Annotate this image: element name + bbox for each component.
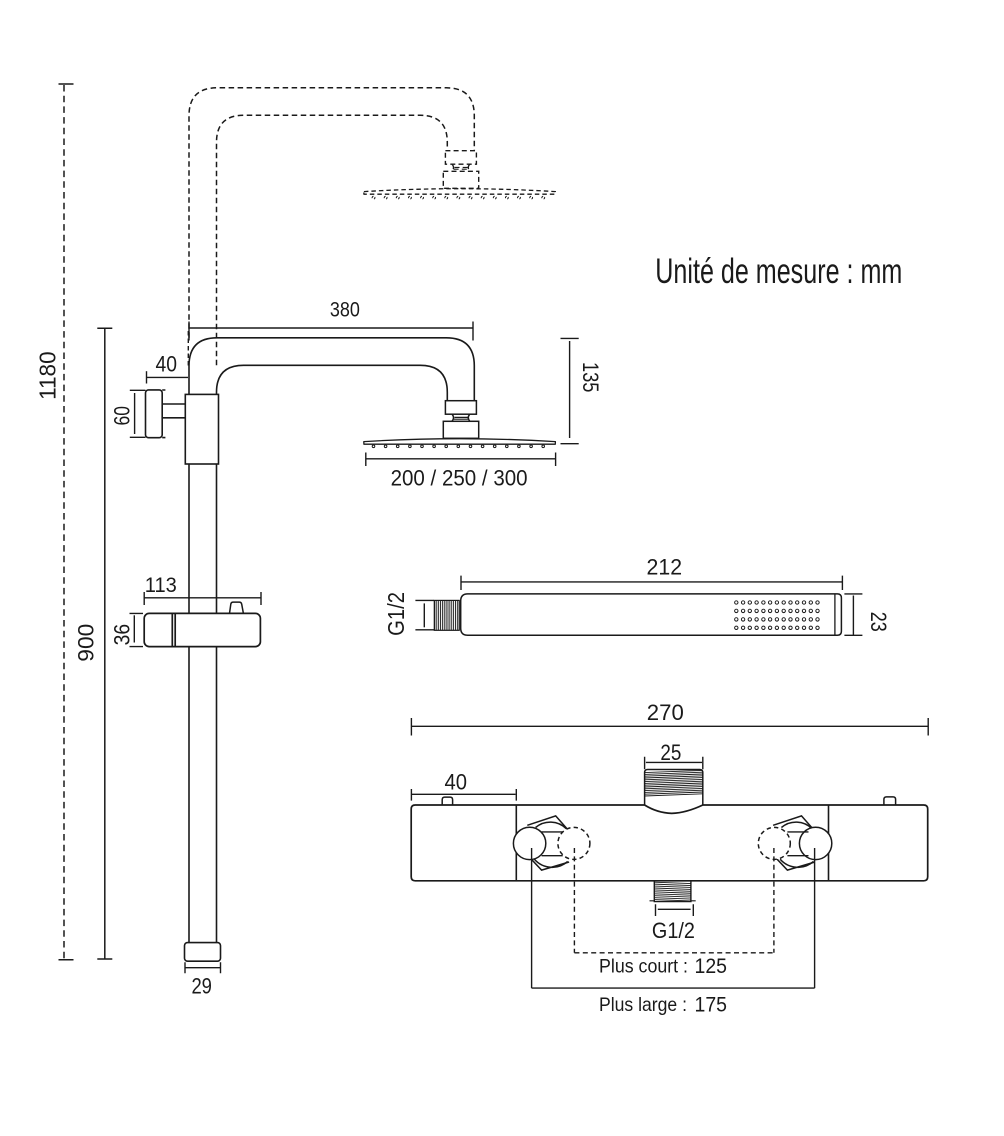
svg-text:135: 135 bbox=[578, 362, 603, 393]
svg-text:23: 23 bbox=[866, 612, 891, 632]
svg-text:Plus large :: Plus large : bbox=[599, 994, 687, 1016]
svg-text:125: 125 bbox=[695, 954, 728, 978]
svg-text:212: 212 bbox=[647, 554, 683, 579]
svg-text:60: 60 bbox=[109, 406, 134, 426]
svg-text:36: 36 bbox=[110, 624, 135, 646]
svg-text:Unité de mesure : mm: Unité de mesure : mm bbox=[655, 252, 902, 291]
svg-text:1180: 1180 bbox=[34, 351, 60, 400]
svg-text:G1/2: G1/2 bbox=[383, 592, 409, 636]
svg-text:29: 29 bbox=[191, 974, 212, 999]
svg-text:40: 40 bbox=[156, 351, 178, 376]
svg-text:175: 175 bbox=[695, 993, 728, 1017]
svg-text:200 / 250 / 300: 200 / 250 / 300 bbox=[391, 466, 528, 491]
svg-text:Plus court :: Plus court : bbox=[599, 956, 688, 978]
svg-text:380: 380 bbox=[330, 297, 360, 321]
svg-text:40: 40 bbox=[445, 770, 468, 795]
svg-text:25: 25 bbox=[660, 740, 681, 765]
svg-text:G1/2: G1/2 bbox=[652, 918, 695, 943]
svg-text:900: 900 bbox=[73, 624, 98, 662]
svg-text:113: 113 bbox=[145, 573, 177, 597]
svg-text:270: 270 bbox=[647, 700, 684, 725]
